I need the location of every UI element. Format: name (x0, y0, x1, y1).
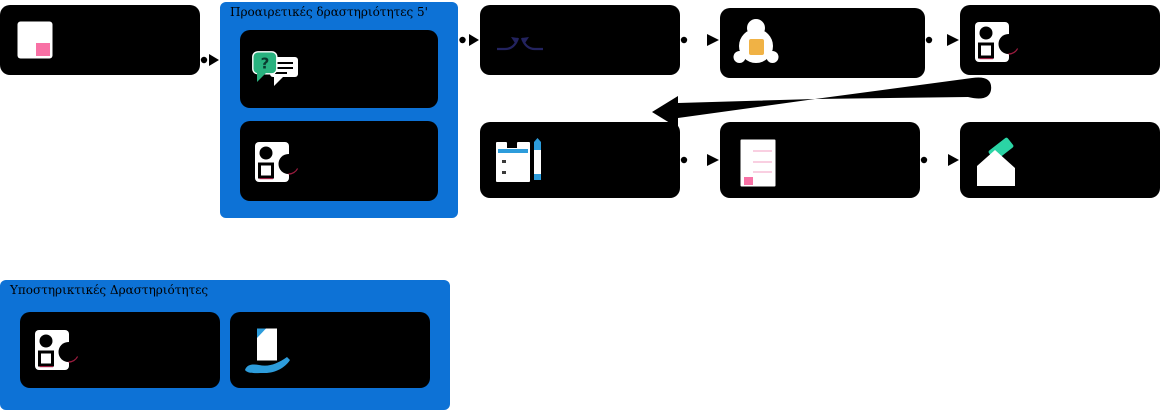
group-optional-title: Προαιρετικές δραστηριότητες 5' (230, 5, 428, 19)
shapes-icon (35, 328, 79, 372)
connector-arrow (920, 152, 960, 168)
node-notepad[interactable] (480, 122, 680, 198)
node-collision[interactable] (480, 5, 680, 75)
picture-frame-icon (17, 21, 53, 59)
node-shapes-main[interactable] (960, 5, 1160, 75)
node-hand-document[interactable] (230, 312, 430, 388)
node-bell[interactable] (720, 8, 925, 78)
node-intro[interactable] (0, 5, 200, 75)
collision-arrows-icon (495, 28, 545, 54)
group-optional-activities[interactable]: Προαιρετικές δραστηριότητες 5' ? (220, 2, 458, 218)
group-supportive-activities[interactable]: Υποστηρικτικές Δραστηριότητες (0, 280, 450, 410)
node-shapes-support[interactable] (20, 312, 220, 388)
connector-arrow (925, 32, 960, 48)
node-document[interactable] (720, 122, 920, 198)
connector-arrow (458, 32, 480, 48)
connector-arrow (680, 32, 720, 48)
shapes-icon (975, 20, 1019, 64)
connector-arrow (200, 52, 220, 68)
hand-document-icon (243, 328, 291, 376)
notepad-pencil-icon (494, 138, 542, 186)
node-ballot[interactable] (960, 122, 1160, 198)
connector-arrow (680, 152, 720, 168)
diagram-canvas: Προαιρετικές δραστηριότητες 5' ? (0, 0, 1162, 412)
shapes-icon (255, 140, 299, 184)
document-icon (740, 139, 776, 187)
bell-icon (733, 17, 779, 63)
node-question-discussion[interactable]: ? (240, 30, 438, 108)
question-chat-icon: ? (252, 51, 298, 93)
svg-text:?: ? (261, 55, 270, 73)
group-supportive-title: Υποστηρικτικές Δραστηριότητες (10, 283, 208, 297)
ballot-envelope-icon (975, 136, 1020, 188)
node-shapes-activity-1[interactable] (240, 121, 438, 201)
